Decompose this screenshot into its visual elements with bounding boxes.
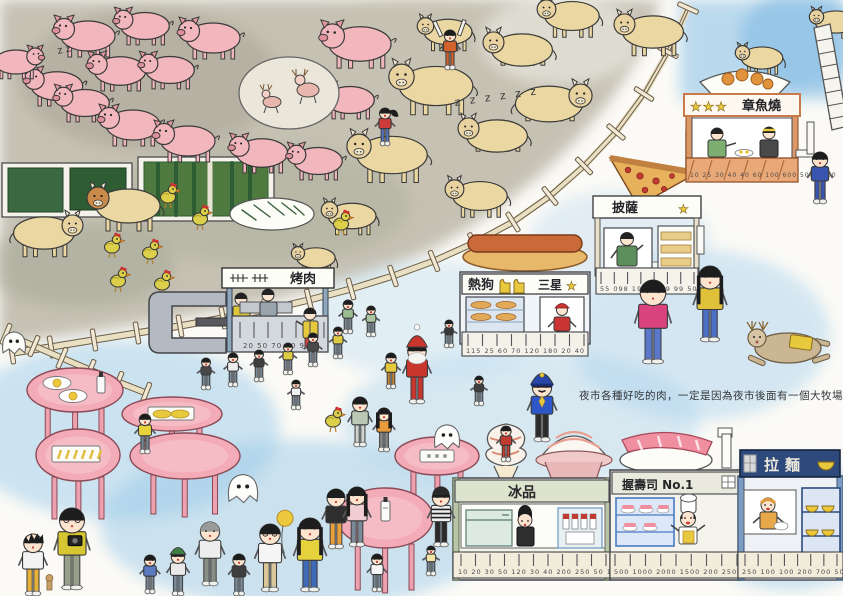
ramen-prices: 250 100 100 200 700 500 350 250 bbox=[742, 568, 843, 576]
ghost bbox=[3, 332, 26, 354]
takoyaki-pipe bbox=[807, 122, 814, 154]
ghost bbox=[435, 425, 460, 449]
takoyaki-sign-text: 章魚燒 bbox=[742, 98, 781, 114]
painting-canvas: z z z z z z z z 烤肉 20 50 70 90 90 bbox=[0, 0, 843, 596]
reindeer-saddle bbox=[789, 335, 813, 351]
thought-bubble bbox=[239, 57, 339, 129]
patch-cell bbox=[8, 168, 63, 212]
hatch-patch bbox=[230, 198, 314, 230]
watercolor-night-market-painting: z z z z z z z z 烤肉 20 50 70 90 90 bbox=[0, 0, 843, 596]
giant-nigiri-sculpture bbox=[620, 432, 712, 473]
ghost bbox=[228, 475, 257, 503]
ice-sign-text: 冰品 bbox=[508, 484, 536, 501]
bbq-prices: 20 50 70 90 90 bbox=[243, 342, 310, 350]
pizza-star-icon: ★ bbox=[678, 202, 689, 216]
bbq-sign-text: 烤肉 bbox=[290, 271, 316, 287]
ramen-bowl-shelf bbox=[802, 488, 840, 558]
ramen-sign-text: 拉麵 bbox=[764, 456, 806, 474]
sushi-chimney bbox=[722, 434, 731, 468]
handwritten-caption: 夜市各種好吃的肉，一定是因為夜市後面有一個大牧場， bbox=[579, 389, 843, 402]
sushi-sign-text: 握壽司 No.1 bbox=[622, 477, 693, 492]
hotdog-prices: 115 25 60 70 120 180 20 40 bbox=[466, 347, 585, 355]
takoyaki-cook-right bbox=[760, 127, 778, 157]
pizza-sign-text: 披薩 bbox=[612, 200, 638, 216]
ramen-stall: 拉麵 250 100 100 200 700 500 350 250 bbox=[738, 450, 843, 580]
giant-hotdog-sausage bbox=[468, 235, 582, 252]
takoyaki-stars: ★★★ bbox=[690, 100, 728, 115]
pizza-pipe bbox=[697, 226, 704, 254]
hotdog-star-icon: ★ bbox=[566, 279, 577, 293]
hotdog-sign-text: 熱狗 bbox=[468, 277, 494, 293]
hotdog-stall: 熱狗 三星 ★ 115 25 60 70 120 180 20 40 bbox=[460, 235, 590, 356]
hotdog-rating-text: 三星 bbox=[538, 278, 562, 292]
